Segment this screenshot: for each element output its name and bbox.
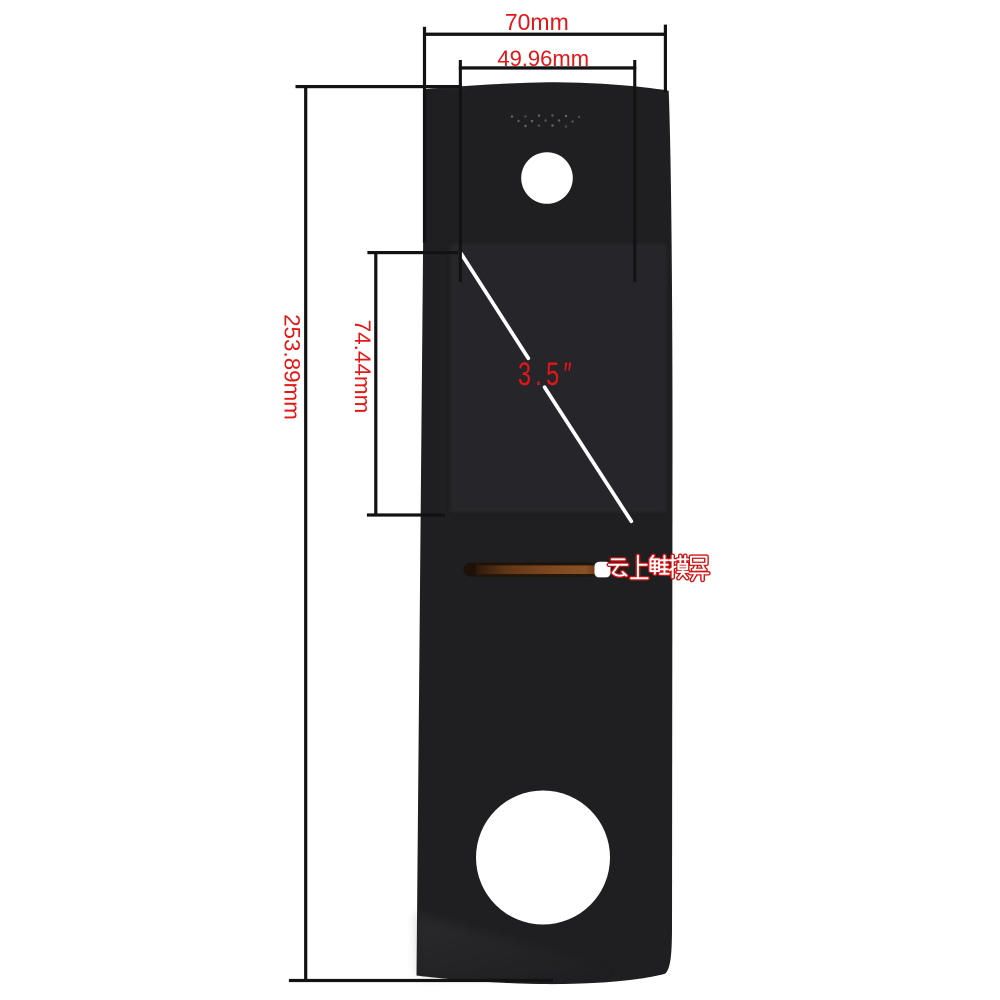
svg-text:49.96mm: 49.96mm	[497, 46, 589, 71]
svg-text:70mm: 70mm	[505, 9, 569, 35]
svg-text:253.89mm: 253.89mm	[280, 314, 305, 420]
svg-text:74.44mm: 74.44mm	[350, 320, 375, 414]
svg-text:3.5″: 3.5″	[518, 355, 576, 392]
